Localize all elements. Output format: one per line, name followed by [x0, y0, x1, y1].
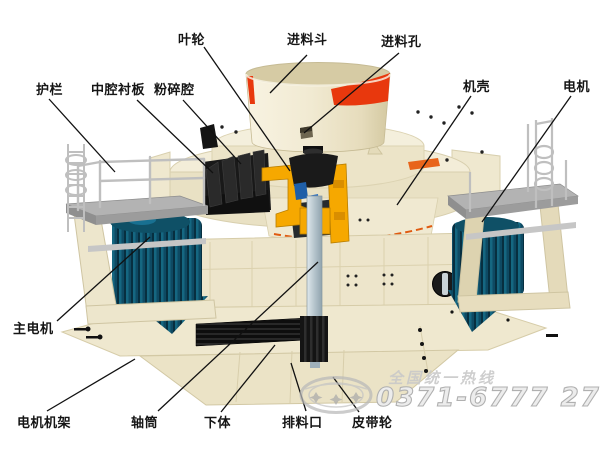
label-feed-hopper: 进料斗: [287, 29, 328, 48]
feed-hole-part: [300, 126, 313, 139]
label-impeller: 叶轮: [178, 29, 205, 48]
label-discharge-port: 排料口: [282, 412, 323, 431]
label-middle-cavity-liner: 中腔衬板: [91, 79, 145, 98]
label-motor: 电机: [563, 76, 590, 95]
leader-motor-frame: [47, 359, 135, 411]
label-lower-body: 下体: [204, 412, 231, 431]
label-feed-hole: 进料孔: [381, 31, 422, 50]
machine-illustration: [0, 0, 600, 450]
impeller-cap: [289, 153, 338, 187]
label-casing: 机壳: [463, 76, 490, 95]
label-main-motor: 主电机: [13, 318, 54, 337]
leader-guardrail: [49, 99, 115, 172]
label-crushing-chamber: 粉碎腔: [154, 79, 195, 98]
label-guardrail: 护栏: [36, 79, 63, 98]
belt-pulley-part: [300, 316, 328, 368]
label-motor-frame: 电机机架: [17, 412, 71, 431]
right-platform: [448, 118, 578, 312]
sand-maker-structure-diagram: 叶轮 进料斗 进料孔 护栏 中腔衬板 粉碎腔 机壳 电机 主电机 电机机架 轴筒…: [0, 0, 600, 450]
ladder-left: [66, 144, 86, 232]
label-shaft-tube: 轴筒: [131, 412, 158, 431]
label-belt-pulley: 皮带轮: [352, 412, 393, 431]
